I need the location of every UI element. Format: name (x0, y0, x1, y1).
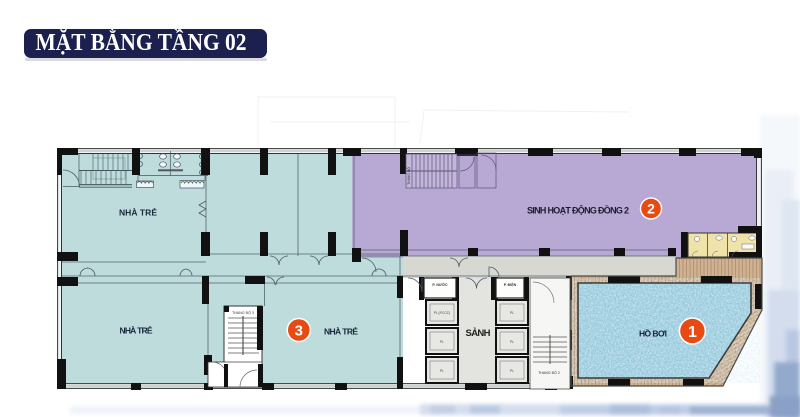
svg-text:PL: PL (440, 369, 444, 373)
svg-text:1: 1 (688, 324, 697, 341)
svg-text:THANG BỘ 3: THANG BỘ 3 (232, 310, 254, 315)
svg-text:HỒ BƠI: HỒ BƠI (639, 328, 667, 339)
svg-text:PL: PL (510, 311, 514, 315)
svg-text:THANG BỘ 2: THANG BỘ 2 (538, 370, 560, 375)
svg-text:2: 2 (647, 201, 655, 217)
svg-text:3: 3 (295, 323, 303, 340)
svg-text:THANG BỘ: THANG BỘ (406, 167, 411, 185)
svg-text:PL: PL (510, 340, 514, 344)
svg-text:P. ĐIỆN: P. ĐIỆN (504, 282, 517, 287)
svg-text:SINH HOẠT ĐỘNG ĐỒNG 2: SINH HOẠT ĐỘNG ĐỒNG 2 (527, 205, 629, 216)
svg-text:SẢNH: SẢNH (466, 327, 491, 339)
svg-text:PL: PL (440, 340, 444, 344)
svg-text:P. NƯỚC: P. NƯỚC (432, 282, 448, 287)
svg-text:NHÀ TRẺ: NHÀ TRẺ (120, 325, 153, 336)
svg-text:PL: PL (510, 369, 514, 373)
svg-text:NHÀ TRẺ: NHÀ TRẺ (324, 326, 358, 337)
svg-text:NHÀ TRẺ: NHÀ TRẺ (119, 207, 157, 218)
svg-text:MẶT BẰNG TẦNG 02: MẶT BẰNG TẦNG 02 (36, 29, 247, 56)
svg-text:PL (P.CCC): PL (P.CCC) (434, 311, 450, 315)
